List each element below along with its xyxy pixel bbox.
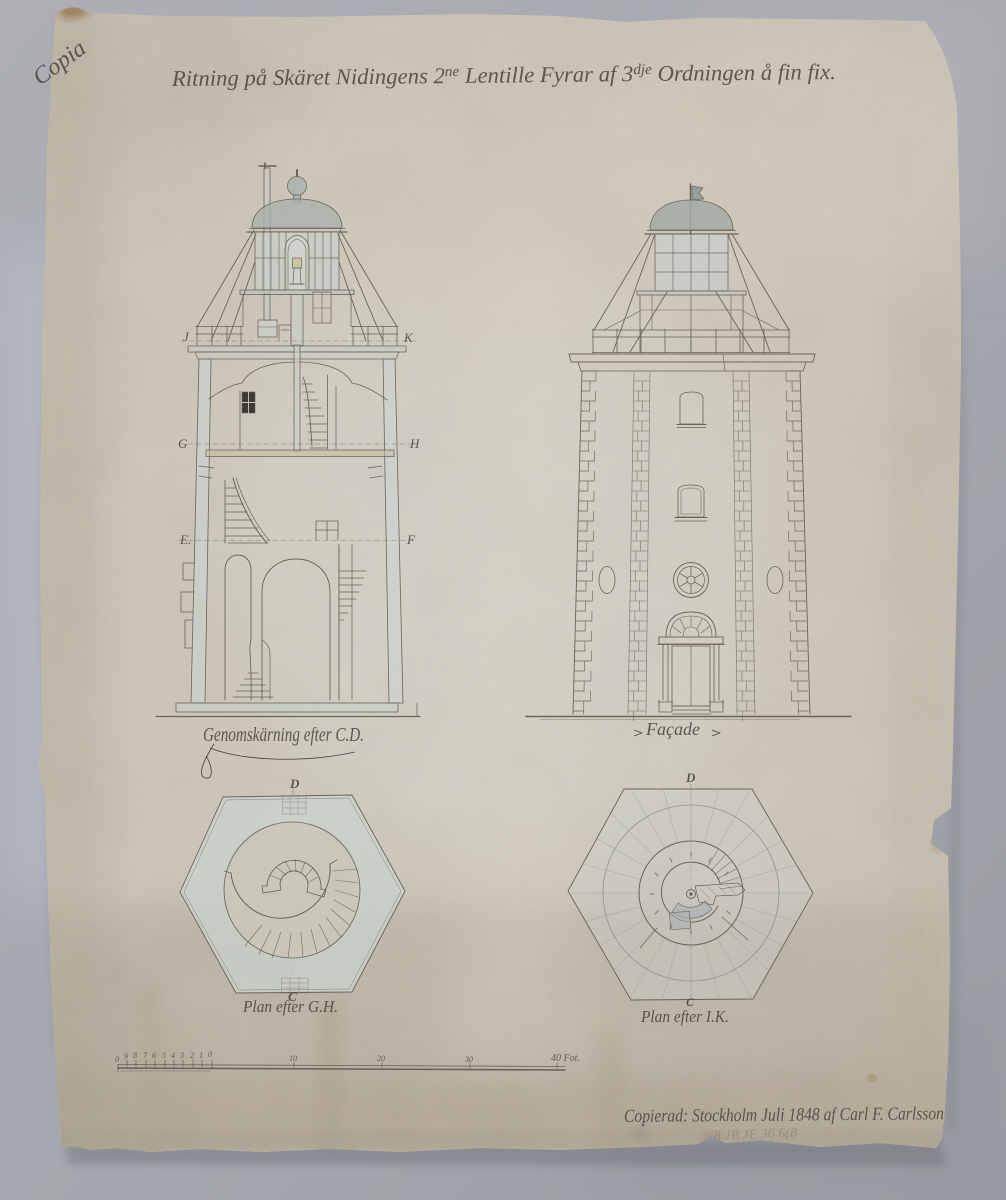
svg-text:3: 3 (179, 1051, 184, 1060)
svg-text:6: 6 (152, 1051, 156, 1060)
svg-text:0: 0 (115, 1055, 119, 1064)
svg-text:Plan efter I.K.: Plan efter I.K. (640, 1007, 729, 1026)
svg-text:8: 8 (133, 1051, 137, 1060)
svg-text:2: 2 (190, 1051, 194, 1060)
svg-text:D: D (289, 776, 300, 791)
svg-text:10: 10 (289, 1054, 297, 1063)
svg-text:G: G (178, 436, 188, 451)
svg-text:9: 9 (124, 1052, 128, 1061)
svg-text:0: 0 (208, 1050, 212, 1059)
svg-text:40 Fot.: 40 Fot. (551, 1053, 580, 1064)
svg-text:1: 1 (199, 1051, 203, 1060)
svg-text:Copierad: Stockholm Juli 1848: Copierad: Stockholm Juli 1848 af Carl F.… (624, 1104, 944, 1127)
svg-text:8 JB JE 36 6(8: 8 JB JE 36 6(8 (714, 1126, 798, 1144)
svg-text:Façade: Façade (645, 719, 700, 739)
svg-text:K: K (403, 330, 414, 345)
svg-text:H: H (409, 436, 420, 451)
svg-text:30: 30 (464, 1055, 473, 1064)
svg-text:4: 4 (171, 1051, 175, 1060)
svg-text:Plan efter G.H.: Plan efter G.H. (242, 997, 338, 1016)
svg-text:D: D (685, 770, 696, 785)
svg-text:F: F (406, 532, 416, 547)
svg-text:Genomskärning efter C.D.: Genomskärning efter C.D. (203, 724, 364, 746)
svg-text:E.: E. (179, 532, 191, 547)
svg-text:20: 20 (377, 1054, 385, 1063)
svg-text:5: 5 (162, 1051, 166, 1060)
